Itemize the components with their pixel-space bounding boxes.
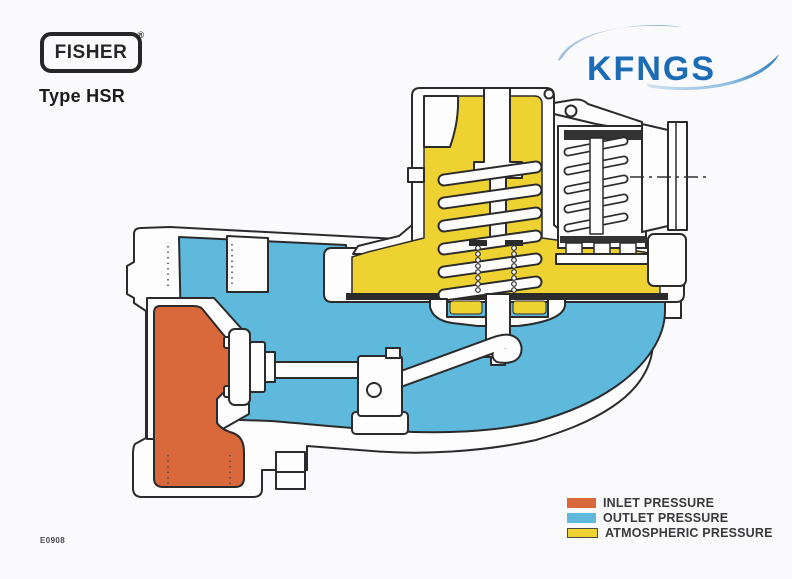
legend-label: INLET PRESSURE <box>603 496 714 510</box>
outlet-color-swatch <box>567 513 596 523</box>
valve-stem <box>275 362 363 378</box>
registered-mark: ® <box>137 30 144 40</box>
model-title: Type HSR <box>39 86 125 107</box>
case-wall-notch <box>408 168 424 182</box>
lever-mount-tab <box>386 348 400 358</box>
relief-seat-block <box>594 243 610 254</box>
valve-disk <box>229 329 250 405</box>
legend-row-inlet: INLET PRESSURE <box>567 497 773 508</box>
kfngs-logo-text: KFNGS <box>587 50 716 88</box>
bracket-hole <box>566 106 577 117</box>
fisher-logo: FISHER ® <box>40 32 142 73</box>
relief-seat-bar <box>560 236 646 243</box>
lever-pivot-pin <box>367 383 381 397</box>
relief-stem <box>590 138 603 234</box>
closing-cap-face <box>668 122 687 230</box>
atmospheric-color-swatch <box>567 528 598 538</box>
fisher-logo-box: FISHER ® <box>40 32 142 73</box>
page: FISHER ® Type HSR KFNGS INLET PRESSURE O… <box>0 0 792 579</box>
closing-cap-cone <box>642 124 668 232</box>
pan-pocket <box>513 301 546 314</box>
legend-label: ATMOSPHERIC PRESSURE <box>605 526 773 540</box>
flange-bolt-block <box>227 236 268 292</box>
legend-row-outlet: OUTLET PRESSURE <box>567 512 773 523</box>
pressure-legend: INLET PRESSURE OUTLET PRESSURE ATMOSPHER… <box>567 497 773 542</box>
bottom-flange-detail <box>276 452 305 472</box>
relief-seat-block <box>620 243 636 254</box>
relief-seat-block <box>566 243 582 254</box>
kfngs-logo: KFNGS <box>552 18 787 98</box>
inlet-color-swatch <box>567 498 596 508</box>
case-wall-block <box>424 96 458 147</box>
fisher-logo-text: FISHER <box>55 42 128 64</box>
side-bracket <box>648 234 686 286</box>
pan-pocket <box>450 301 482 314</box>
legend-row-atmospheric: ATMOSPHERIC PRESSURE <box>567 527 773 538</box>
figure-code: E0908 <box>40 536 65 545</box>
legend-label: OUTLET PRESSURE <box>603 511 728 525</box>
relief-base-plate <box>556 254 652 264</box>
disk-holder <box>250 342 265 392</box>
disk-holder-hub <box>265 352 275 382</box>
bottom-flange-detail <box>276 472 305 489</box>
